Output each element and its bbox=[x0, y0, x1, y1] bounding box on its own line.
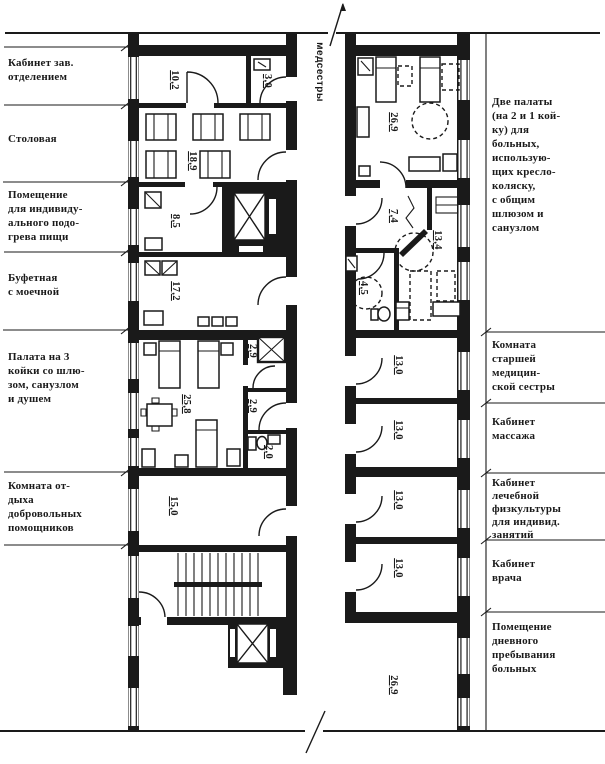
area-nurse: 13,0 bbox=[393, 355, 404, 375]
area-ward2: 26,9 bbox=[388, 112, 399, 132]
area-doctor: 13,0 bbox=[393, 558, 404, 578]
corridor-label: медсестры bbox=[314, 42, 325, 102]
break-line-top-icon bbox=[5, 3, 600, 46]
label-head-nurse: Комната старшей медицин- ской сестры bbox=[492, 339, 602, 395]
stairs bbox=[174, 553, 262, 616]
floor-plan-page: 10,2 3,0 18,9 8,5 17,2 25,8 2,9 2,9 2,0 … bbox=[0, 0, 605, 764]
area-pantry: 17,2 bbox=[170, 281, 181, 301]
label-rest-room: Комната от- дыха добровольных помощников bbox=[8, 480, 123, 536]
label-dining: Столовая bbox=[8, 133, 123, 147]
area-physio: 13,0 bbox=[393, 490, 404, 510]
area-washroom: 3,0 bbox=[262, 74, 273, 88]
toilet-icon bbox=[371, 309, 378, 320]
area-dining: 18,9 bbox=[187, 151, 198, 171]
area-rest: 15,0 bbox=[168, 496, 179, 516]
room-pantry-furniture bbox=[144, 261, 237, 326]
area-ward1: 13,4 bbox=[432, 230, 443, 250]
area-vestibule: 7,4 bbox=[388, 209, 399, 223]
dining-tables bbox=[146, 114, 270, 178]
label-massage: Кабинет массажа bbox=[492, 416, 602, 444]
area-wc: 2,0 bbox=[263, 445, 274, 459]
area-shower: 2,9 bbox=[247, 344, 258, 358]
label-head-office: Кабинет зав. отделением bbox=[8, 57, 123, 85]
shower-cabin-icon bbox=[258, 337, 285, 362]
label-two-wards: Две палаты (на 2 и 1 кой- ку) для больны… bbox=[492, 96, 602, 236]
area-ward3: 25,8 bbox=[181, 394, 192, 414]
break-line-bottom-icon bbox=[0, 711, 605, 753]
label-food-heating: Помещение для индивиду- ального подо- гр… bbox=[8, 189, 123, 245]
area-day-room: 26,9 bbox=[388, 675, 399, 695]
room-ward2-furniture bbox=[357, 57, 459, 176]
label-ward3: Палата на 3 койки со шлю- зом, санузлом … bbox=[8, 351, 123, 407]
area-head-office: 10,2 bbox=[169, 70, 180, 90]
label-physio: Кабинет лечебной физкультуры для индивид… bbox=[492, 477, 602, 542]
room-washroom-furniture bbox=[254, 59, 270, 70]
area-massage: 13,0 bbox=[393, 420, 404, 440]
area-san-unit: 4,5 bbox=[358, 281, 369, 295]
area-food-heating: 8,5 bbox=[170, 214, 181, 228]
room-food-heating-furniture bbox=[145, 192, 162, 250]
label-doctor: Кабинет врача bbox=[492, 558, 602, 586]
label-pantry: Буфетная с моечной bbox=[8, 272, 123, 300]
label-day-room: Помещение дневного пребывания больных bbox=[492, 621, 602, 677]
area-lock: 2,9 bbox=[247, 399, 258, 413]
wheelchair-circle bbox=[412, 103, 448, 139]
